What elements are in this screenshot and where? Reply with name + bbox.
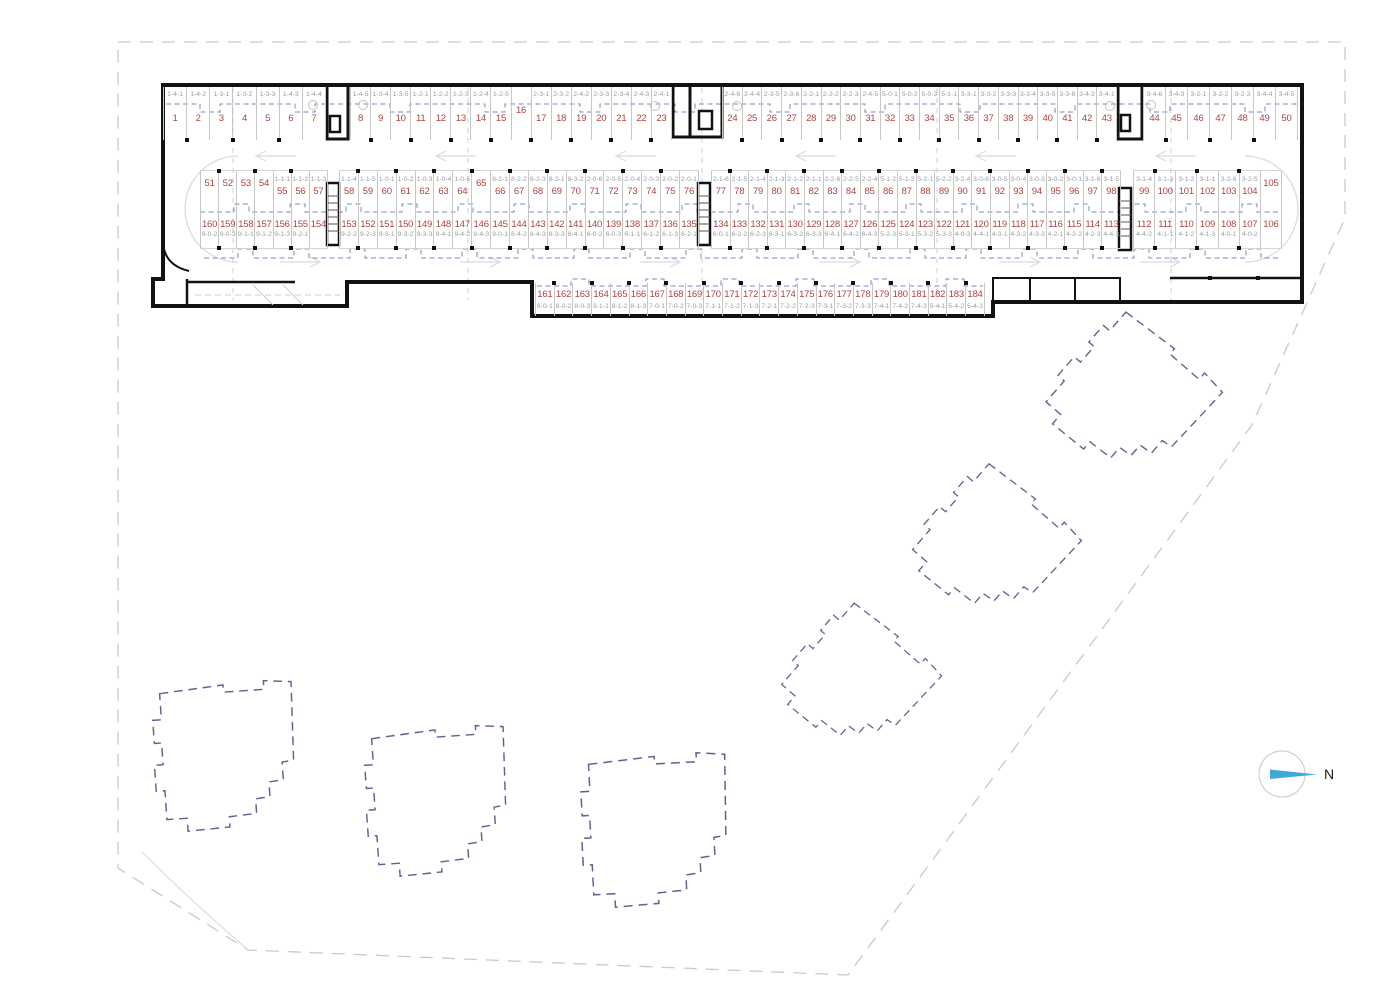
parking-space: 2-1-677 (711, 171, 730, 213)
unit-label: 9-3-3 (417, 231, 433, 239)
parking-space: 1-3-13 (209, 87, 232, 140)
parking-space: 8-2-368 (528, 171, 547, 213)
space-number: 54 (259, 179, 269, 189)
space-number: 126 (862, 220, 877, 230)
parking-space: 1797-4-1 (872, 283, 891, 316)
space-number: 102 (1200, 187, 1215, 197)
parking-space: 5-2-289 (934, 171, 953, 213)
unit-label: 1-2-3 (453, 91, 469, 99)
unit-label: 4-3-2 (1010, 231, 1026, 239)
unit-label: 4-1-2 (1178, 231, 1194, 239)
unit-label: 3-4-5 (1279, 91, 1295, 99)
space-number: 170 (706, 290, 721, 300)
space-number: 83 (827, 187, 837, 197)
space-number: 70 (571, 187, 581, 197)
wall-tick (231, 138, 235, 142)
space-number: 76 (684, 187, 694, 197)
unit-label: 1-2-2 (433, 91, 449, 99)
unit-label: 8-0-2 (556, 303, 572, 311)
unit-label: 7-1-2 (724, 303, 740, 311)
unit-label: 8-1-1 (593, 303, 609, 311)
space-number: 183 (949, 290, 964, 300)
parking-space: 2-2-485 (860, 171, 879, 213)
entry-door-swing-arc (164, 249, 189, 271)
space-number: 90 (957, 187, 967, 197)
unit-label: 7-2-1 (761, 303, 777, 311)
building-outline (899, 454, 1083, 638)
parking-space: 1-2-313 (450, 87, 470, 140)
parking-space: 54 (254, 171, 272, 213)
space-number: 129 (806, 220, 821, 230)
wall-tick (1195, 169, 1199, 173)
parking-space: 3-3-338 (998, 87, 1018, 140)
space-number: 5 (265, 114, 270, 124)
wall-tick (1164, 138, 1168, 142)
parking-space: 2-3-526 (761, 87, 781, 140)
unit-label: 3-2-3 (1235, 91, 1251, 99)
wall-tick (356, 246, 360, 250)
wall-tick (951, 169, 955, 173)
parking-space: 1406-0-2 (585, 212, 604, 248)
north-label: N (1324, 766, 1334, 782)
parking-row-segment: 2-4-6242-4-4252-3-5262-3-6272-2-1282-2-2… (722, 87, 1117, 140)
space-number: 136 (662, 220, 677, 230)
space-number: 169 (687, 290, 702, 300)
parking-space: 2-4-624 (722, 87, 742, 140)
parking-space: 1124-4-2 (1133, 212, 1154, 248)
wall-tick (432, 246, 436, 250)
unit-label: 9-3-2 (398, 231, 414, 239)
space-number: 66 (495, 187, 505, 197)
space-number: 171 (724, 290, 739, 300)
space-number: 74 (646, 187, 656, 197)
space-number: 181 (911, 290, 926, 300)
parking-row-segment: 3-4-6443-4-3453-2-1463-2-2473-2-3483-4-4… (1143, 87, 1298, 140)
space-number: 182 (930, 290, 945, 300)
space-number: 163 (575, 290, 590, 300)
space-number: 15 (496, 114, 506, 124)
parking-space: 1-0-261 (396, 171, 415, 213)
space-number: 82 (809, 187, 819, 197)
unit-label: 9-2-3 (360, 231, 376, 239)
space-number: 45 (1171, 114, 1181, 124)
parking-space: 1-2-212 (430, 87, 450, 140)
unit-label: 1-1-3 (310, 176, 326, 184)
space-number: 134 (713, 220, 728, 230)
space-number: 17 (536, 114, 546, 124)
unit-label: 1-3-2 (237, 91, 253, 99)
space-number: 46 (1193, 114, 1203, 124)
parking-space: 3-0-493 (1009, 171, 1028, 213)
space-number: 84 (846, 187, 856, 197)
space-number: 40 (1043, 114, 1053, 124)
space-number: 27 (786, 114, 796, 124)
building-outline (578, 751, 733, 908)
space-number: 59 (363, 187, 373, 197)
space-number: 7 (311, 114, 316, 124)
wall-tick (583, 246, 587, 250)
unit-label: 5-0-1 (882, 91, 898, 99)
parking-space: 1225-3-3 (934, 212, 953, 248)
space-number: 174 (780, 290, 795, 300)
space-number: 140 (587, 220, 602, 230)
space-number: 88 (920, 187, 930, 197)
wall-tick (277, 138, 281, 142)
parking-space: 8-3-169 (547, 171, 566, 213)
parking-space: 1-1-357 (309, 171, 328, 213)
space-number: 21 (616, 114, 626, 124)
space-number: 92 (995, 187, 1005, 197)
unit-label: 8-2-1 (492, 176, 508, 184)
space-number: 22 (636, 114, 646, 124)
wall-tick (529, 138, 533, 142)
unit-label: 9-1-1 (238, 231, 254, 239)
space-number: 14 (476, 114, 486, 124)
parking-space: 1469-4-3 (471, 212, 490, 248)
parking-space: 1286-4-1 (823, 212, 842, 248)
parking-space: 1-1-458 (339, 171, 358, 213)
unit-label: 3-0-1 (1066, 176, 1082, 184)
parking-space: 1174-3-3 (1027, 212, 1046, 248)
parking-space: 2-4-531 (860, 87, 880, 140)
parking-space: 1668-1-3 (629, 283, 648, 316)
space-number: 156 (275, 220, 290, 230)
wall-tick (449, 138, 453, 142)
parking-space: 1255-2-3 (878, 212, 897, 248)
space-number: 67 (514, 187, 524, 197)
parking-space: 2-0-572 (603, 171, 622, 213)
wall-tick (877, 169, 881, 173)
space-number: 144 (511, 220, 526, 230)
parking-space: 1529-2-3 (358, 212, 377, 248)
parking-space: 3-2-490 (953, 171, 972, 213)
space-number: 28 (806, 114, 816, 124)
parking-space: 1-3-49 (370, 87, 390, 140)
wall-tick (621, 246, 625, 250)
parking-space: 1-4-47 (302, 87, 326, 140)
space-number: 153 (341, 220, 356, 230)
parking-space: 1638-0-3 (572, 283, 591, 316)
unit-label: 8-3-1 (549, 176, 565, 184)
space-number: 93 (1013, 187, 1023, 197)
unit-label: 2-2-1 (803, 91, 819, 99)
space-number: 81 (790, 187, 800, 197)
unit-label: 1-3-3 (260, 91, 276, 99)
parking-space: 1418-4-1 (566, 212, 585, 248)
space-number: 109 (1200, 220, 1215, 230)
space-number: 16 (516, 106, 526, 116)
unit-label: 8-1-2 (612, 303, 628, 311)
wall-tick (432, 169, 436, 173)
unit-label: 2-2-6 (824, 176, 840, 184)
wall-tick (964, 281, 968, 285)
wall-tick (1195, 246, 1199, 250)
unit-label: 8-3-3 (549, 231, 565, 239)
space-number: 52 (223, 179, 233, 189)
unit-label: 5-0-2 (902, 91, 918, 99)
parking-space: 1356-2-1 (679, 212, 699, 248)
parking-space: 1677-0-1 (647, 283, 666, 316)
space-number: 180 (893, 290, 908, 300)
parking-space: 1569-1-3 (273, 212, 291, 248)
parking-space: 1618-0-1 (535, 283, 554, 316)
unit-label: 7-4-2 (892, 303, 908, 311)
space-number: 167 (649, 290, 664, 300)
parking-space: 3-1-697 (1083, 171, 1102, 213)
parking-space: 1-2-414 (470, 87, 490, 140)
space-number: 135 (681, 220, 696, 230)
unit-label: 4-2-2 (1066, 231, 1082, 239)
unit-label: 4-4-2 (1136, 231, 1152, 239)
unit-label: 7-4-3 (911, 303, 927, 311)
parking-space: 2-4-322 (631, 87, 651, 140)
wall-tick (777, 281, 781, 285)
unit-label: 8-2-2 (511, 176, 527, 184)
unit-label: 7-2-2 (780, 303, 796, 311)
parking-space: 5-0-132 (880, 87, 900, 140)
unit-label: 2-1-2 (787, 176, 803, 184)
unit-label: 3-4-2 (1079, 91, 1095, 99)
parking-space: 1787-3-3 (853, 283, 872, 316)
wall-tick (898, 138, 902, 142)
unit-label: 9-4-2 (454, 231, 470, 239)
space-number: 29 (826, 114, 836, 124)
parking-space: 3-4-449 (1253, 87, 1275, 140)
parking-space: 2-4-123 (651, 87, 672, 140)
road-edge-arc (142, 852, 246, 948)
wall-tick (552, 281, 556, 285)
unit-label: 2-4-4 (744, 91, 760, 99)
space-number: 175 (799, 290, 814, 300)
unit-label: 2-0-4 (624, 176, 640, 184)
parking-space: 1-3-24 (232, 87, 255, 140)
unit-label: 2-2-4 (862, 176, 878, 184)
parking-space: 1-2-515 (490, 87, 510, 140)
parking-space: 1346-0-1 (711, 212, 730, 248)
stair-shaft (327, 183, 339, 245)
space-number: 41 (1062, 114, 1072, 124)
parking-space: 1767-3-1 (816, 283, 835, 316)
parking-space: 1717-1-2 (722, 283, 741, 316)
unit-label: 1-1-4 (341, 176, 357, 184)
unit-label: 5-3-2 (917, 231, 933, 239)
parking-row-segment: 1-4-581-3-491-3-5101-2-1111-2-2121-2-313… (350, 87, 672, 140)
space-number: 100 (1158, 187, 1173, 197)
parking-space: 3-4-143 (1096, 87, 1117, 140)
parking-space: 2-2-584 (841, 171, 860, 213)
space-number: 49 (1259, 114, 1269, 124)
parking-space: 1214-0-3 (953, 212, 972, 248)
space-number: 110 (1179, 220, 1194, 230)
space-number: 143 (530, 220, 545, 230)
parking-space: 2-2-330 (840, 87, 860, 140)
space-number: 42 (1082, 114, 1092, 124)
space-number: 98 (1106, 187, 1116, 197)
space-number: 48 (1237, 114, 1247, 124)
parking-space: 1658-1-2 (610, 283, 629, 316)
parking-space: 1-1-559 (358, 171, 377, 213)
unit-label: 7-2-3 (799, 303, 815, 311)
wall-tick (1016, 138, 1020, 142)
wall-tick (1095, 138, 1099, 142)
wall-tick (1100, 169, 1104, 173)
parking-space: 1-3-35 (256, 87, 279, 140)
wall-tick (951, 246, 955, 250)
space-number: 20 (596, 114, 606, 124)
space-number: 85 (864, 187, 874, 197)
parking-space: 51 (200, 171, 218, 213)
wall-tick (977, 138, 981, 142)
unit-label: 9-4-3 (473, 231, 489, 239)
space-number: 120 (973, 220, 988, 230)
wall-tick (926, 281, 930, 285)
unit-label: 6-4-3 (862, 231, 878, 239)
unit-label: 4-3-3 (1029, 231, 1045, 239)
unit-label: 1-1-1 (274, 176, 290, 184)
unit-label: 2-3-1 (533, 91, 549, 99)
space-number: 151 (379, 220, 394, 230)
space-number: 139 (606, 220, 621, 230)
space-number: 122 (936, 220, 951, 230)
unit-label: 4-0-2 (1242, 231, 1258, 239)
unit-label: 3-1-3 (1157, 176, 1173, 184)
unit-label: 2-1-4 (750, 176, 766, 184)
space-number: 35 (944, 114, 954, 124)
parking-space: 3-3-540 (1037, 87, 1057, 140)
parking-space: 1707-1-1 (703, 283, 722, 316)
unit-label: 1-2-1 (413, 91, 429, 99)
unit-label: 5-4-3 (967, 303, 983, 311)
unit-label: 2-2-3 (843, 91, 859, 99)
wall-tick (621, 169, 625, 173)
ramp-markings (195, 285, 340, 305)
unit-label: 5-4-1 (930, 303, 946, 311)
parking-space: 2-2-128 (801, 87, 821, 140)
unit-label: 9-1-2 (256, 231, 272, 239)
parking-space: 1144-2-3 (1083, 212, 1102, 248)
parking-space: 1-1-155 (273, 171, 291, 213)
space-number: 31 (865, 114, 875, 124)
unit-label: 8-0-3 (574, 303, 590, 311)
parking-space: 3-0-295 (1046, 171, 1065, 213)
parking-space: 2-0-275 (660, 171, 679, 213)
parking-space: 1727-1-3 (741, 283, 760, 316)
wall-tick (508, 169, 512, 173)
space-number: 141 (568, 220, 583, 230)
space-number: 38 (1003, 114, 1013, 124)
space-number: 118 (1011, 220, 1026, 230)
unit-label: 1-2-5 (493, 91, 509, 99)
parking-space: 1807-4-2 (890, 283, 909, 316)
wall-tick (409, 138, 413, 142)
unit-label: 2-0-5 (605, 176, 621, 184)
space-number: 62 (419, 187, 429, 197)
unit-label: 2-4-6 (724, 91, 740, 99)
space-number: 149 (417, 220, 432, 230)
parking-space: 3-1-3100 (1154, 171, 1175, 213)
wall-tick (545, 246, 549, 250)
space-number: 72 (608, 187, 618, 197)
space-number: 10 (396, 114, 406, 124)
wall-tick (583, 169, 587, 173)
parking-space: 1-4-22 (186, 87, 209, 140)
wall-tick (814, 281, 818, 285)
space-number: 44 (1149, 114, 1159, 124)
space-number: 108 (1221, 220, 1236, 230)
unit-label: 3-1-6 (1085, 176, 1101, 184)
unit-label: 2-1-6 (713, 176, 729, 184)
parking-space: 1276-4-2 (841, 212, 860, 248)
space-number: 12 (436, 114, 446, 124)
unit-label: 6-3-1 (769, 231, 785, 239)
unit-label: 6-3-3 (806, 231, 822, 239)
parking-space: 1499-3-3 (415, 212, 434, 248)
space-number: 50 (1281, 114, 1291, 124)
parking-space: 1386-1-1 (622, 212, 641, 248)
space-number: 97 (1088, 187, 1098, 197)
parking-space: 1628-0-2 (554, 283, 573, 316)
wall-tick (988, 169, 992, 173)
unit-label: 1-3-1 (213, 91, 229, 99)
parking-space: 8-2-267 (509, 171, 528, 213)
unit-label: 3-1-2 (1178, 176, 1194, 184)
wall-tick (728, 169, 732, 173)
parking-space: 1074-0-2 (1239, 212, 1260, 248)
parking-space: 1204-4-1 (971, 212, 990, 248)
space-number: 173 (762, 290, 777, 300)
space-number: 39 (1023, 114, 1033, 124)
parking-space: 8-2-166 (490, 171, 509, 213)
wall-tick (851, 281, 855, 285)
parking-row-segment: 2-1-6772-1-5782-1-4792-1-3802-1-2812-1-1… (711, 170, 1121, 213)
unit-label: 1-1-2 (292, 176, 308, 184)
space-number: 99 (1139, 187, 1149, 197)
parking-space: 1326-2-3 (748, 212, 767, 248)
parking-space: 1154-2-2 (1064, 212, 1083, 248)
wall-tick (740, 138, 744, 142)
parking-space: 2-2-683 (823, 171, 842, 213)
parking-space: 1-2-111 (410, 87, 430, 140)
space-number: 128 (825, 220, 840, 230)
parking-space: 1519-3-1 (377, 212, 396, 248)
unit-label: 5-4-2 (948, 303, 964, 311)
wall-tick (253, 169, 257, 173)
space-number: 133 (732, 220, 747, 230)
space-number: 160 (202, 220, 217, 230)
parking-space: 1-0-362 (415, 171, 434, 213)
parking-row-segment: 3-1-4993-1-31003-1-21013-1-11023-2-61033… (1133, 170, 1282, 213)
parking-space: 2-4-219 (571, 87, 591, 140)
wall-tick (1063, 246, 1067, 250)
space-number: 43 (1102, 114, 1112, 124)
space-number: 168 (668, 290, 683, 300)
space-number: 75 (665, 187, 675, 197)
unit-label: 2-0-2 (662, 176, 678, 184)
unit-label: 9-0-1 (492, 231, 508, 239)
unit-label: 1-1-5 (360, 176, 376, 184)
space-number: 159 (220, 220, 235, 230)
space-number: 87 (902, 187, 912, 197)
space-number: 73 (627, 187, 637, 197)
parking-space: 1-4-58 (350, 87, 370, 140)
parking-space: 1184-3-2 (1009, 212, 1028, 248)
wall-tick (765, 246, 769, 250)
unit-label: 4-0-3 (955, 231, 971, 239)
wall-tick (627, 281, 631, 285)
unit-label: 9-0-3 (220, 231, 236, 239)
unit-label: 7-3-1 (817, 303, 833, 311)
parking-space: 1-3-510 (390, 87, 410, 140)
